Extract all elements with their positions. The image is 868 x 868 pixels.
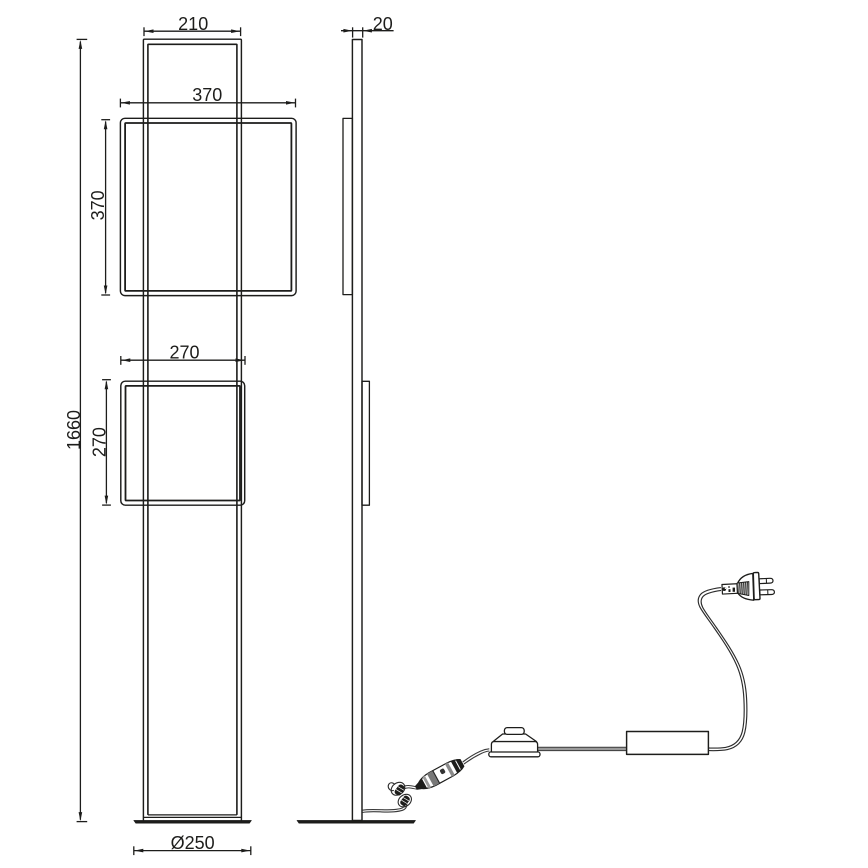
svg-text:270: 270 — [90, 427, 110, 457]
svg-text:1660: 1660 — [64, 410, 84, 450]
svg-text:Ø250: Ø250 — [171, 833, 215, 853]
svg-text:370: 370 — [88, 190, 108, 220]
svg-text:270: 270 — [169, 343, 199, 363]
svg-text:210: 210 — [178, 14, 208, 34]
svg-text:370: 370 — [192, 85, 222, 105]
svg-text:20: 20 — [373, 14, 393, 34]
